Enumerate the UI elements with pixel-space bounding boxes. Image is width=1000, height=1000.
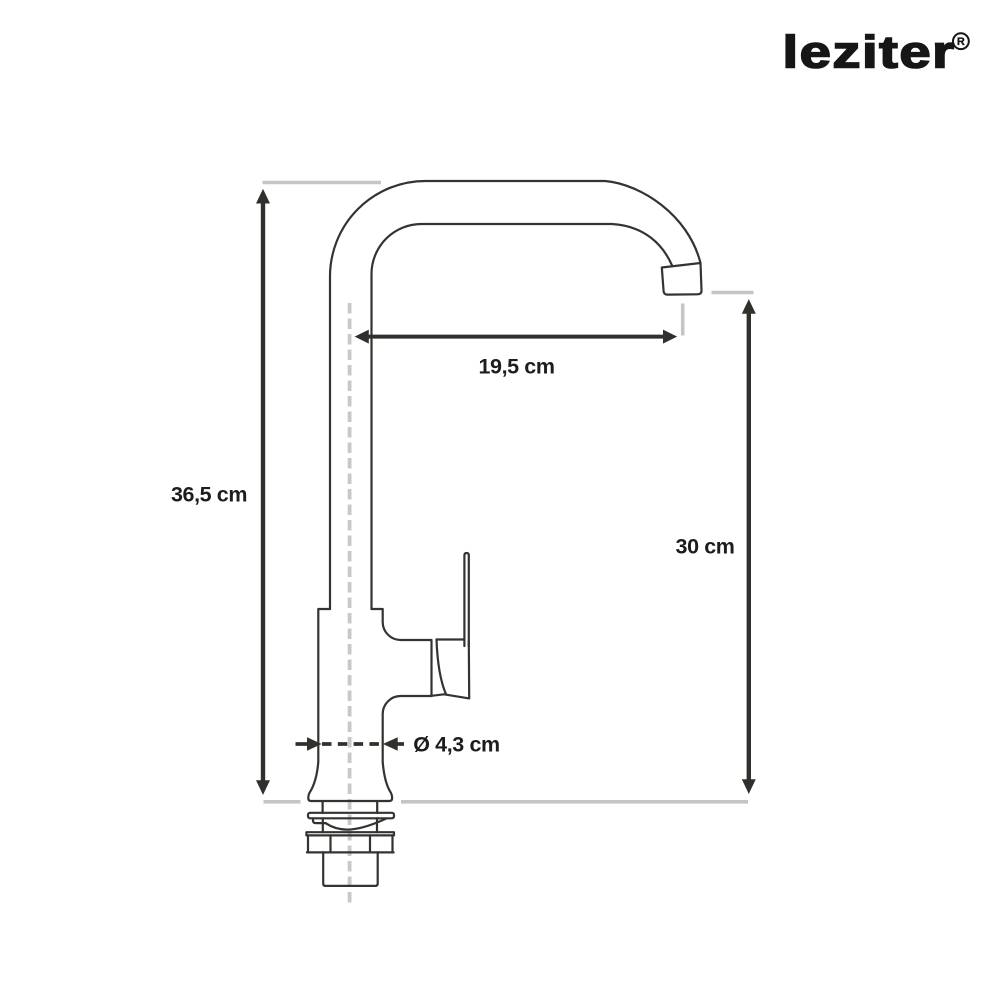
svg-text:30 cm: 30 cm (676, 535, 735, 559)
svg-text:leziter: leziter (783, 27, 956, 77)
svg-text:19,5 cm: 19,5 cm (478, 355, 554, 379)
svg-text:R: R (957, 36, 965, 48)
svg-text:36,5 cm: 36,5 cm (171, 483, 247, 507)
svg-text:Ø 4,3 cm: Ø 4,3 cm (413, 733, 499, 757)
